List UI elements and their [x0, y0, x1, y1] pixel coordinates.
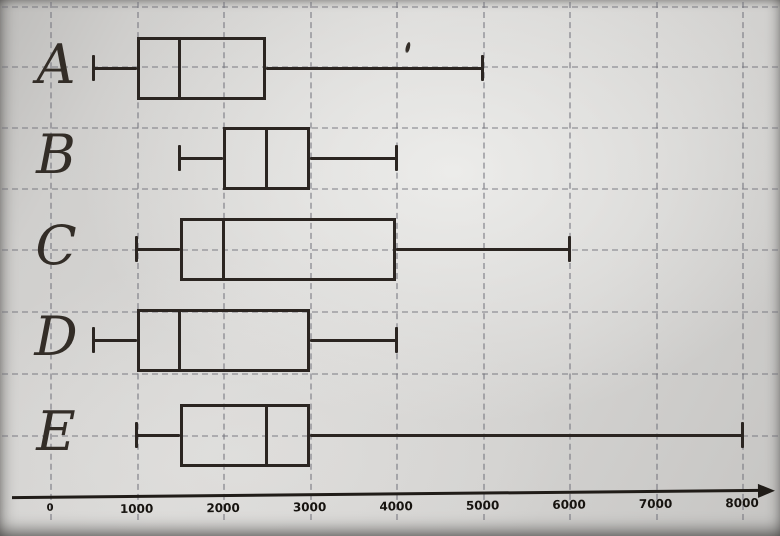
x-tick-label-5000: 5000: [466, 498, 500, 512]
x-axis: 010002000300040005000600070008000: [0, 0, 780, 536]
x-axis-arrow: [758, 483, 775, 497]
boxplot-photo: ABCDE 010002000300040005000600070008000: [0, 0, 780, 536]
x-tick-label-2000: 2000: [206, 501, 240, 515]
x-tick-label-7000: 7000: [639, 497, 673, 511]
x-tick-label-8000: 8000: [725, 496, 759, 510]
x-tick-label-0: 0: [47, 503, 54, 514]
x-tick-label-1000: 1000: [120, 502, 154, 516]
x-tick-label-3000: 3000: [293, 500, 327, 514]
x-tick-label-4000: 4000: [379, 499, 413, 513]
x-tick-label-6000: 6000: [552, 498, 586, 512]
